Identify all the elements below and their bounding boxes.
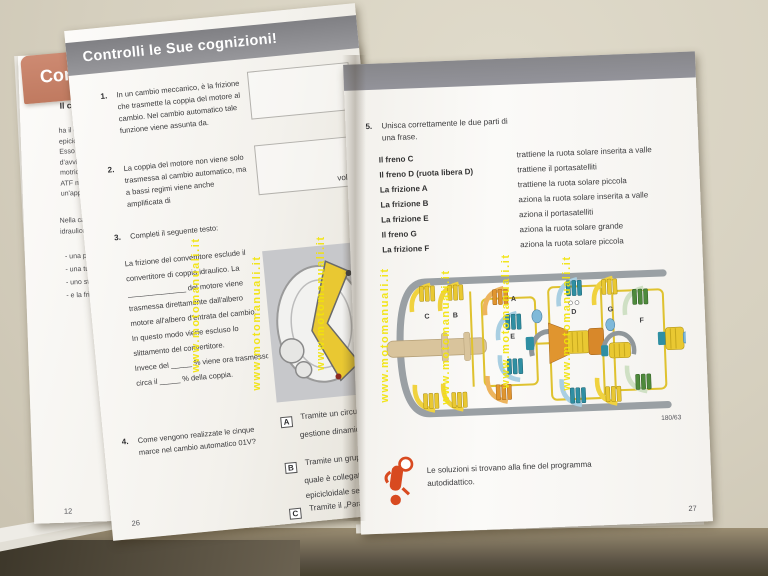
page-number-26: 26	[131, 518, 140, 528]
question-4-text: Come vengono realizzate le cinque marce …	[137, 422, 273, 459]
match-left-item: La frizione F	[382, 244, 429, 255]
answer-letter-a: A	[280, 416, 293, 428]
match-left-item: La frizione B	[380, 199, 428, 210]
question-4-number: 4.	[121, 437, 129, 447]
label-brake-c: C	[424, 312, 429, 320]
question-3-intro: Completi il seguente testo:	[130, 218, 261, 242]
question-5-number: 5.	[365, 122, 372, 131]
brake-g-pack	[601, 279, 617, 295]
question-2-number: 2.	[107, 165, 115, 175]
question-3-number: 3.	[114, 233, 122, 243]
match-right-item: trattiene il portasatelliti	[517, 162, 597, 174]
figure-number: 180/63	[661, 414, 682, 422]
question-5-text: Unisca correttamente le due parti di una…	[381, 115, 522, 144]
photo-of-open-manual: Il converti ha il compito epicicloidale …	[0, 0, 768, 576]
label-brake-d: D	[571, 308, 576, 316]
table-shadow	[0, 540, 300, 576]
clutch-a-pack	[492, 289, 508, 305]
match-left-item: La frizione A	[380, 184, 428, 195]
question-2-text: La coppia del motore non viene solo tras…	[123, 151, 251, 211]
question-1-text: In un cambio meccanico, è la frizione ch…	[116, 78, 244, 138]
planetary-gearset-rear	[600, 318, 634, 359]
clutch-e-pack	[505, 314, 521, 330]
exclamation-mascot-icon	[378, 454, 420, 507]
label-brake-g: G	[608, 305, 614, 313]
clutch-f-pack	[632, 289, 648, 305]
right-page-banner-band	[343, 51, 696, 90]
solutions-note-text: Le soluzioni si trovano alla fine del pr…	[426, 456, 637, 490]
brake-b-pack	[448, 285, 464, 301]
answer-letter-c: C	[289, 508, 302, 520]
label-clutch-f: F	[639, 316, 644, 324]
freewheel-symbol	[575, 301, 579, 305]
page-number-27: 27	[688, 504, 697, 513]
page-gutter-shadow	[342, 55, 366, 521]
match-left-item: La frizione E	[381, 214, 429, 225]
freewheel-symbol	[568, 301, 572, 305]
right-page: 5. Unisca correttamente le due parti di …	[343, 51, 713, 534]
match-left-item: Il freno G	[381, 229, 416, 239]
answer-letter-b: B	[285, 462, 298, 474]
page-number-12: 12	[64, 506, 73, 515]
match-right-item: aziona il portasatelliti	[519, 207, 594, 219]
brake-d-pack	[566, 280, 582, 296]
gearbox-schematic-svg: C B A E D G F 180/63	[379, 250, 690, 438]
match-right-item: trattiene la ruota solare inserita a val…	[517, 145, 652, 159]
gearbox-schematic: C B A E D G F 180/63	[379, 250, 690, 438]
question-1-number: 1.	[100, 91, 108, 101]
question-3-cloze-text: La frizione del convertitore esclude il …	[124, 244, 270, 391]
question-1-answer-box	[247, 62, 353, 120]
output-shaft	[658, 327, 690, 351]
brake-c-pack	[419, 286, 435, 302]
match-left-item: Il freno C	[379, 154, 414, 164]
label-clutch-a: A	[511, 295, 516, 303]
label-clutch-e: E	[510, 332, 515, 340]
label-brake-b: B	[453, 311, 458, 319]
